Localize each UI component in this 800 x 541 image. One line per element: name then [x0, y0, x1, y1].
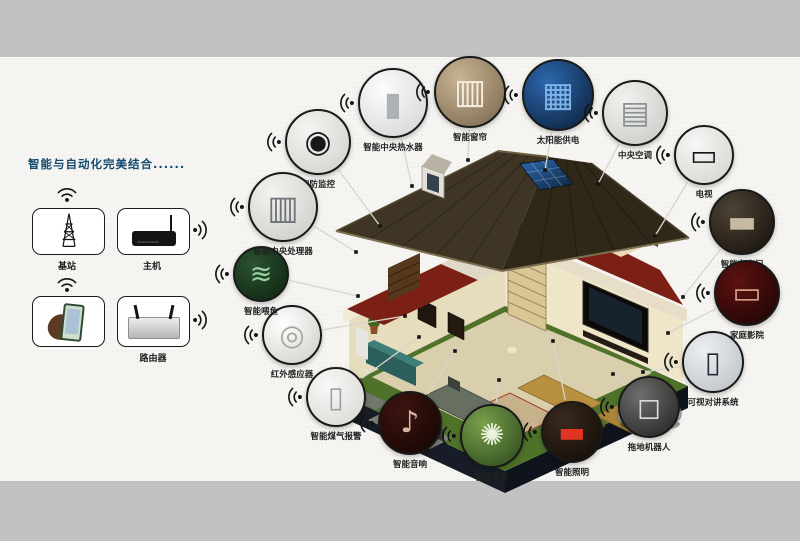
connector-line-solar-power: [545, 132, 552, 170]
connector-line-gas-alarm: [362, 337, 419, 378]
host-box-icon: [132, 217, 176, 246]
anchor-dot: [354, 250, 358, 254]
phone-box: [32, 296, 105, 347]
anchor-dot: [403, 314, 407, 318]
anchor-dot: [653, 234, 657, 238]
anchor-dot: [466, 158, 470, 162]
page-title: 智能与自动化完美结合......: [28, 156, 185, 172]
connector-line-infrared-sensor: [324, 316, 405, 330]
connector-line-sprinkler: [496, 380, 499, 402]
anchor-dot: [356, 294, 360, 298]
anchor-dot: [611, 372, 615, 376]
connector-line-fish-feeder: [290, 281, 358, 296]
anchor-dot: [666, 331, 670, 335]
router-label: 路由器: [139, 351, 166, 364]
anchor-dot: [378, 224, 382, 228]
connector-line-security-camera: [339, 170, 380, 226]
anchor-dot: [497, 378, 501, 382]
router-icon: [128, 305, 180, 339]
anchor-dot: [596, 182, 600, 186]
host-label: 主机: [143, 259, 161, 272]
wifi-signal-icon: [58, 274, 76, 296]
radio-tower-icon: [50, 211, 88, 253]
connector-lines: [0, 0, 800, 541]
base-station-box: [32, 208, 105, 255]
host-box: [117, 208, 190, 255]
connector-line-central-ac: [598, 144, 619, 184]
wifi-signal-icon: [58, 184, 76, 206]
smart-home-infographic: { "colors": { "outer_background": "#c2c2…: [0, 0, 800, 541]
connector-line-central-processor: [314, 226, 356, 252]
connector-line-smart-audio: [428, 351, 455, 394]
connector-line-water-heater: [401, 139, 412, 186]
connector-line-tv: [655, 182, 687, 236]
connector-line-garage-door: [683, 250, 720, 297]
anchor-dot: [410, 184, 414, 188]
anchor-dot: [551, 339, 555, 343]
router-box: [117, 296, 190, 347]
anchor-dot: [681, 295, 685, 299]
connector-line-video-intercom: [643, 367, 680, 372]
anchor-dot: [641, 370, 645, 374]
base-station-label: 基站: [58, 259, 76, 272]
connector-line-smart-lighting: [553, 341, 565, 400]
anchor-dot: [417, 335, 421, 339]
wifi-signal-icon: [191, 219, 209, 241]
anchor-dot: [543, 168, 547, 172]
anchor-dot: [453, 349, 457, 353]
hand-phone-icon: [46, 302, 92, 342]
connector-line-home-theater: [668, 309, 716, 333]
wifi-signal-icon: [191, 309, 209, 331]
connector-line-curtain: [468, 130, 469, 160]
